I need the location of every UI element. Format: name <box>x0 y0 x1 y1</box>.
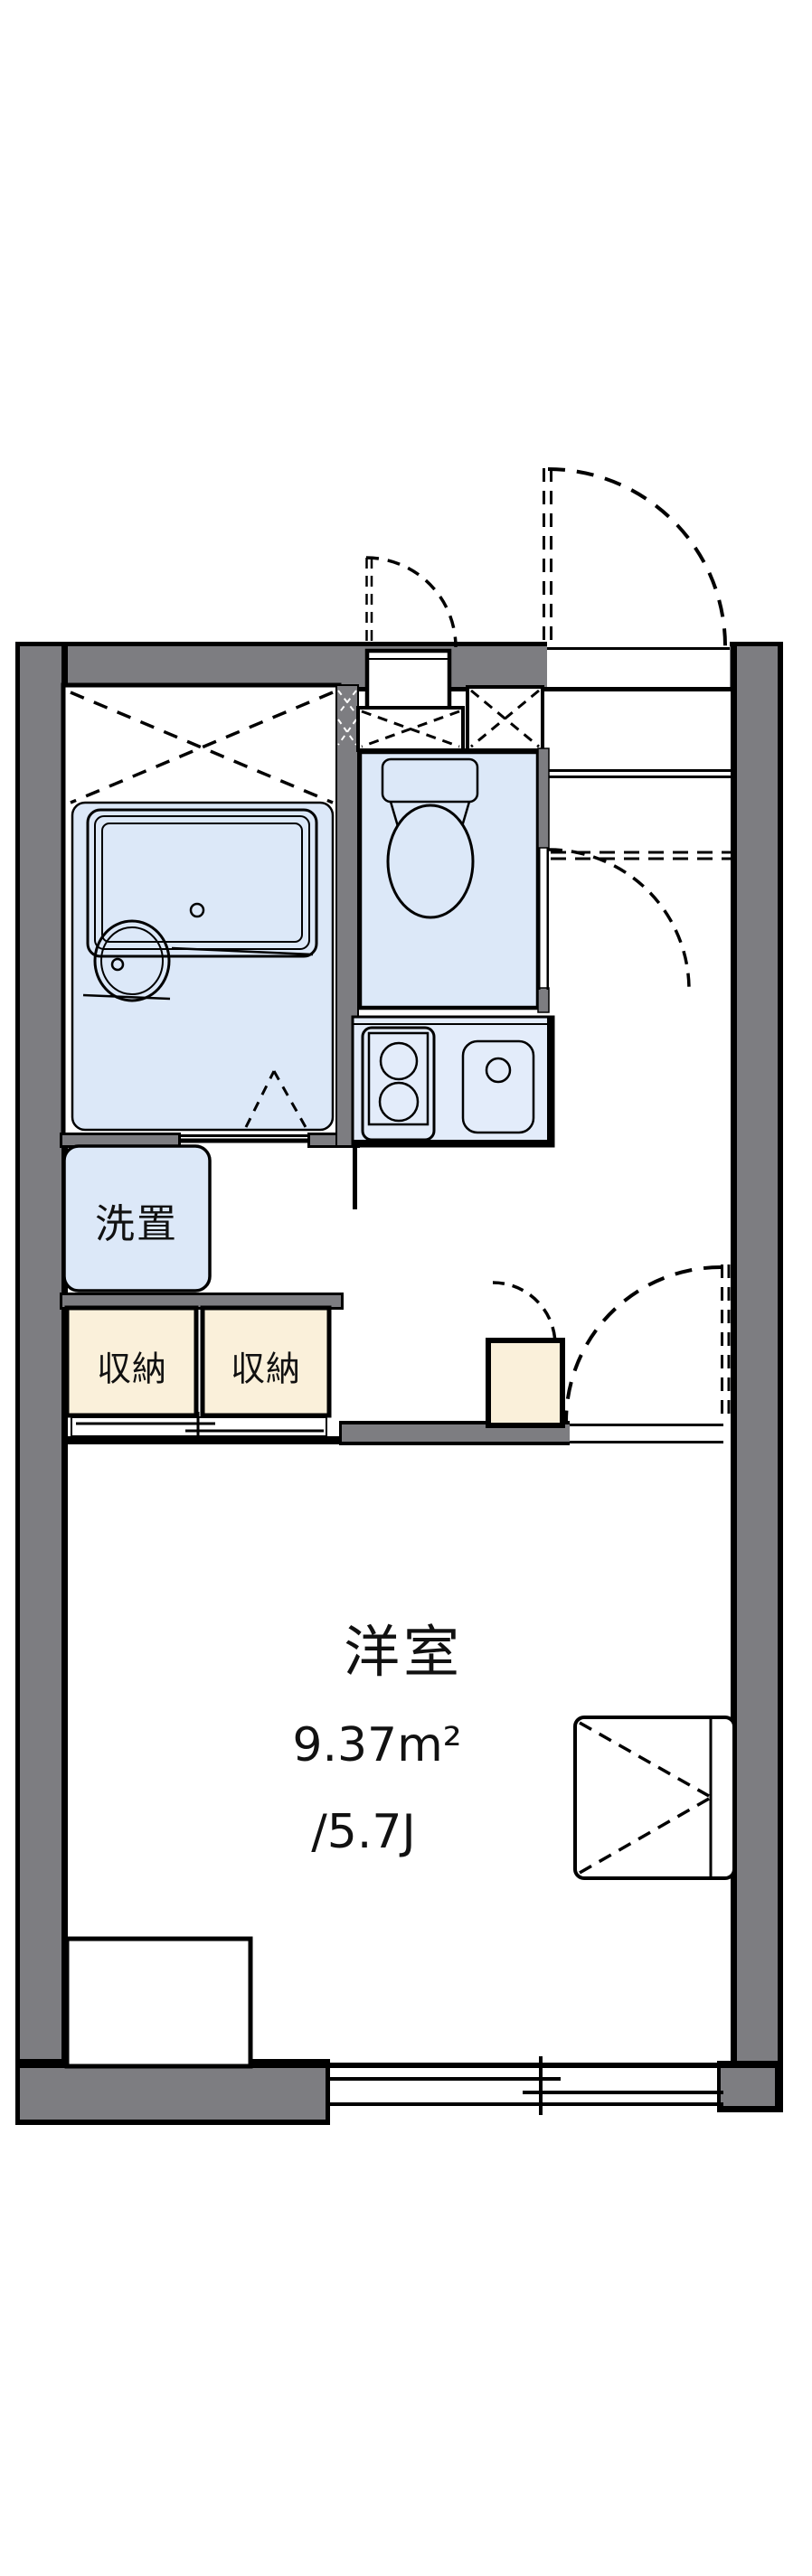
toilet-room <box>360 748 689 1012</box>
closet-left-label: 収納 <box>97 1341 167 1391</box>
toilet <box>382 759 477 917</box>
meter-box-door <box>366 558 456 709</box>
kitchen-counter <box>353 1017 553 1209</box>
entrance-opening <box>547 640 732 691</box>
toilet-door <box>549 850 689 990</box>
washer-space-label: 洗置 <box>95 1191 178 1249</box>
entrance-door <box>544 468 726 646</box>
utility-box <box>488 1283 562 1425</box>
desk-counter <box>67 1939 250 2066</box>
bathroom <box>63 685 339 1141</box>
fold-out-unit <box>575 1717 734 1878</box>
main-room-area-tatami: /5.7J <box>311 1805 416 1859</box>
main-room-area-m2: 9.37m² <box>292 1718 461 1772</box>
entrance-hall <box>549 769 732 859</box>
floor-plan: 洗置 収納 収納 洋室 9.37m² /5.7J <box>0 0 812 2576</box>
main-room-label: 洋室 <box>344 1606 463 1688</box>
closet-right-label: 収納 <box>231 1341 301 1391</box>
floor-plan-svg <box>0 0 812 2576</box>
room-door <box>566 1264 729 1422</box>
